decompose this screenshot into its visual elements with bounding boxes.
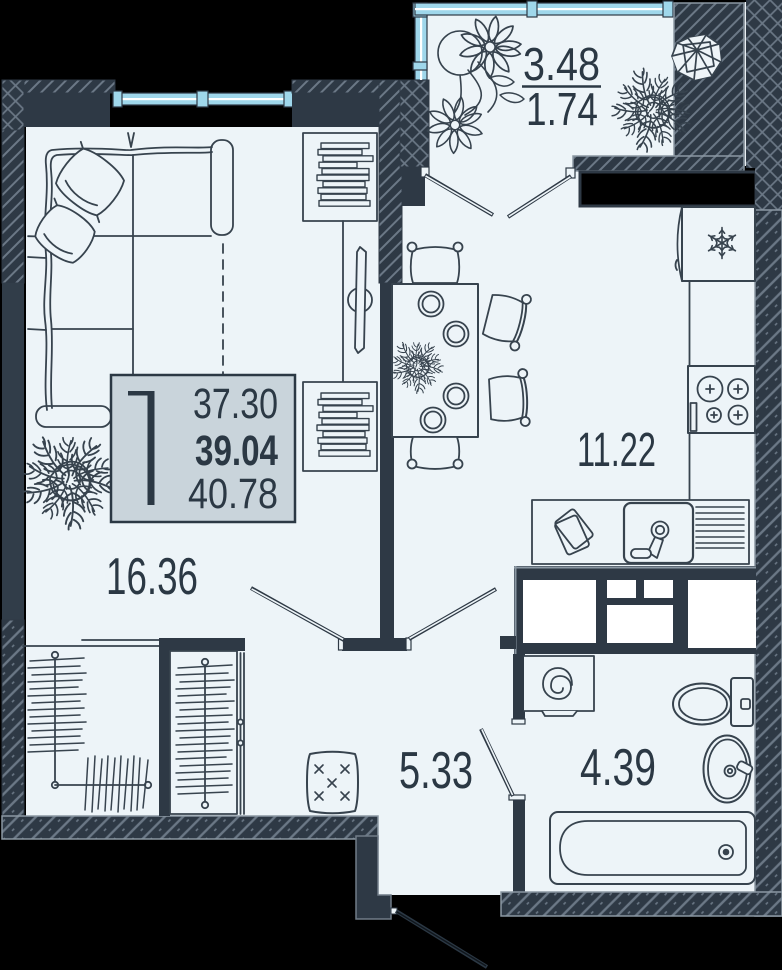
svg-text:37.30: 37.30 bbox=[193, 380, 278, 428]
svg-text:5.33: 5.33 bbox=[399, 742, 473, 800]
svg-text:1.74: 1.74 bbox=[526, 83, 598, 135]
svg-text:11.22: 11.22 bbox=[577, 424, 656, 477]
svg-text:39.04: 39.04 bbox=[195, 427, 278, 475]
svg-text:40.78: 40.78 bbox=[188, 470, 278, 518]
svg-text:4.39: 4.39 bbox=[580, 739, 656, 797]
svg-text:16.36: 16.36 bbox=[106, 548, 198, 606]
